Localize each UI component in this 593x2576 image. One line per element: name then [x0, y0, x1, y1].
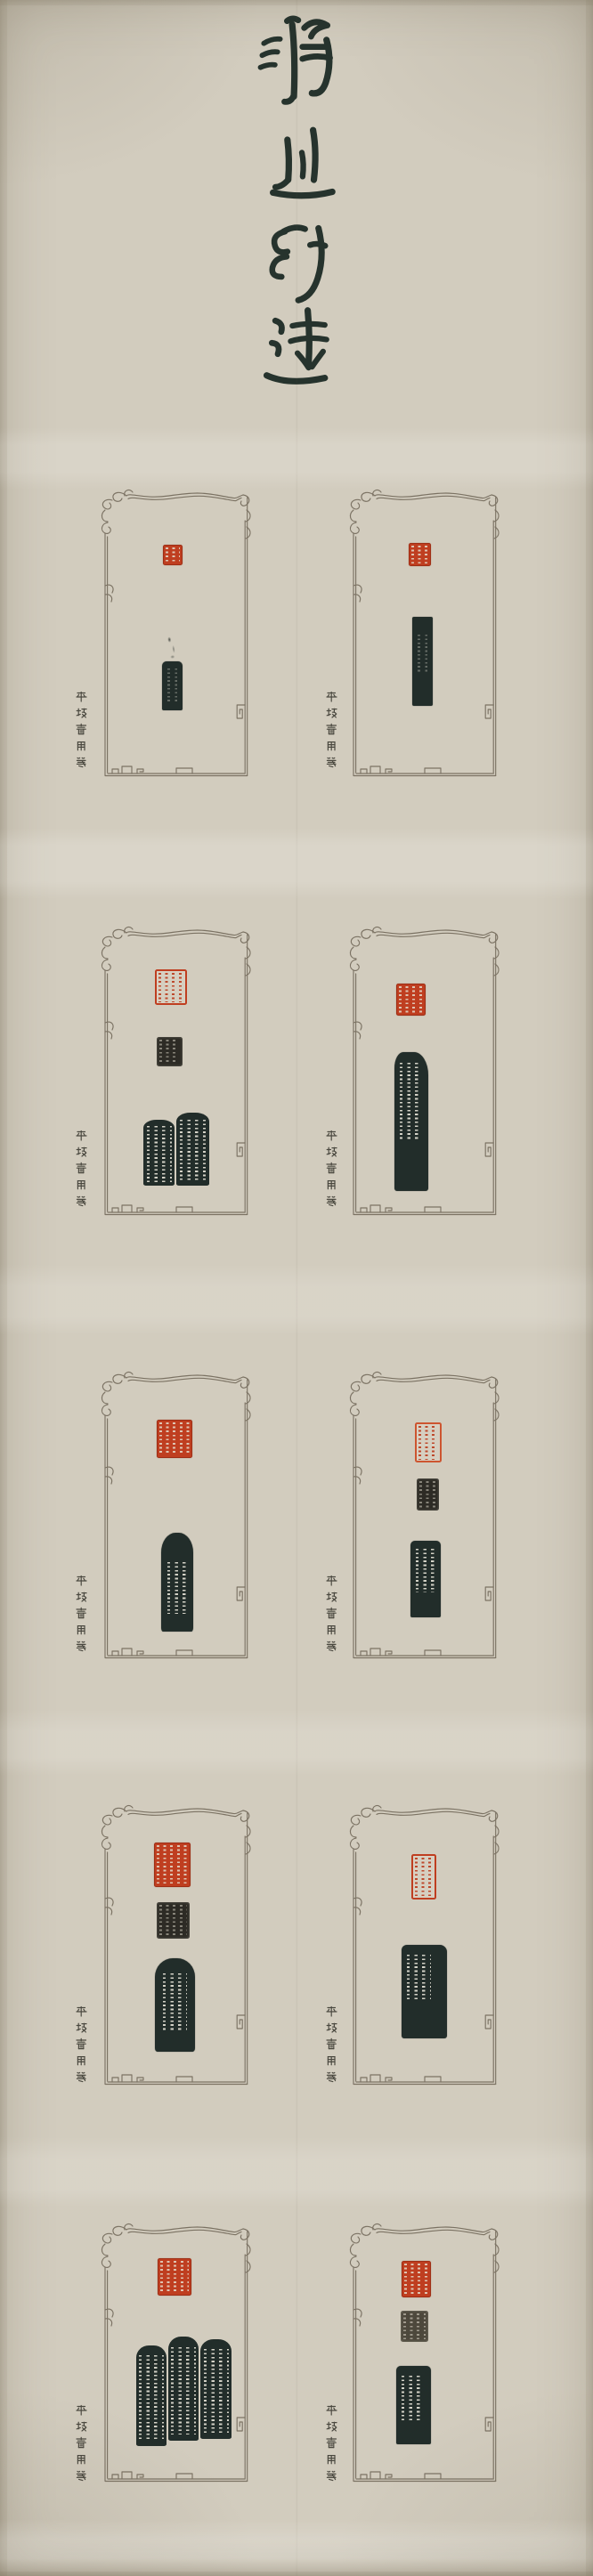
- label-char-2-glyph: [75, 2420, 87, 2433]
- title-calligraphy: 淨 止 印 迹: [0, 0, 593, 418]
- inscription-text: [171, 2347, 195, 2434]
- inscription-text: [402, 2376, 424, 2423]
- label-char-5-glyph: [325, 1640, 337, 1652]
- red-seal-impression: [158, 2258, 191, 2296]
- label-char-2-glyph: [325, 1146, 337, 1158]
- rubbing-column: [176, 1113, 209, 1186]
- label-char-3-glyph: [75, 2436, 87, 2449]
- red-seal-impression: [415, 1422, 442, 1462]
- side-inscription-rubbing: [412, 617, 433, 706]
- red-seal-impression: [155, 969, 187, 1005]
- decorative-frame: [343, 1369, 505, 1667]
- title-char-4-text: 迹: [256, 393, 257, 394]
- label-char-1-glyph: [325, 2005, 337, 2017]
- label-char-1-glyph: [325, 690, 337, 702]
- inscription-text: [167, 1562, 187, 1614]
- seal-panel-9: 平坡齋用箋: [94, 2221, 256, 2491]
- label-char-3-glyph: [325, 1607, 337, 1619]
- side-inscription-rubbing: [143, 1113, 209, 1186]
- side-inscription-rubbing: [396, 2366, 431, 2444]
- rubbing-column: [168, 2337, 199, 2441]
- label-char-2-glyph: [75, 2021, 87, 2034]
- label-char-4-glyph: [75, 1179, 87, 1191]
- title-char-2-text: 止: [262, 207, 263, 207]
- seal-panel-3: 平坡齋用箋: [94, 924, 256, 1224]
- seal-panel-7: 平坡齋用箋: [94, 1802, 256, 2094]
- label-char-2-glyph: [325, 1591, 337, 1603]
- label-char-5-glyph: [75, 2469, 87, 2482]
- title-char-1: 淨: [251, 12, 340, 109]
- seal-panel-1: 平坡齋用箋: [94, 487, 256, 785]
- inscription-text: [416, 1549, 435, 1593]
- label-char-1-glyph: [75, 1574, 87, 1586]
- seal-panel-4: 平坡齋用箋: [343, 924, 505, 1224]
- stationery-mark-label: 平坡齋用箋: [75, 690, 87, 768]
- label-char-4-glyph: [325, 740, 337, 752]
- inscription-text: [139, 2355, 163, 2440]
- title-char-3-glyph: [258, 219, 342, 304]
- label-char-4-glyph: [325, 2453, 337, 2466]
- label-char-3-glyph: [75, 1607, 87, 1619]
- ink-seal-impression: [157, 1037, 183, 1066]
- label-char-4-glyph: [325, 1624, 337, 1636]
- label-char-4-glyph: [75, 1624, 87, 1636]
- stationery-mark-label: 平坡齋用箋: [325, 2403, 337, 2482]
- seal-panel-6: 平坡齋用箋: [343, 1369, 505, 1667]
- red-seal-impression: [409, 543, 431, 566]
- inscription-text: [204, 2349, 229, 2433]
- label-char-3-glyph: [75, 1162, 87, 1174]
- ink-seal-impression: [401, 2311, 428, 2342]
- label-char-5-glyph: [75, 1195, 87, 1207]
- label-char-2-glyph: [75, 1146, 87, 1158]
- seal-album-leaf: 淨 止 印 迹 平坡: [0, 0, 593, 2576]
- side-inscription-rubbing: [402, 1945, 447, 2038]
- title-char-2-glyph: [262, 121, 342, 207]
- stationery-mark-label: 平坡齋用箋: [75, 2005, 87, 2083]
- rubbing-column: [136, 2345, 167, 2446]
- title-char-4-glyph: [256, 303, 342, 393]
- title-char-1-text: 淨: [251, 109, 252, 109]
- side-inscription-rubbing: [162, 661, 183, 710]
- side-inscription-rubbing: [136, 2337, 232, 2446]
- label-char-4-glyph: [325, 2054, 337, 2067]
- ink-seal-impression: [157, 1902, 190, 1939]
- label-char-2-glyph: [75, 707, 87, 719]
- stationery-mark-label: 平坡齋用箋: [75, 1574, 87, 1652]
- red-seal-impression: [411, 1854, 436, 1900]
- red-seal-impression: [396, 984, 426, 1016]
- side-inscription-rubbing: [394, 1052, 428, 1191]
- inscription-text: [407, 1955, 431, 1999]
- title-char-4: 迹: [256, 303, 342, 393]
- seal-panel-5: 平坡齋用箋: [94, 1369, 256, 1667]
- label-char-5-glyph: [75, 756, 87, 768]
- red-seal-impression: [402, 2261, 431, 2297]
- rubbing-column: [143, 1120, 175, 1186]
- inscription-text: [163, 1973, 187, 2031]
- label-char-1-glyph: [325, 1574, 337, 1586]
- label-char-2-glyph: [75, 1591, 87, 1603]
- label-char-3-glyph: [325, 2037, 337, 2050]
- label-char-5-glyph: [325, 2070, 337, 2083]
- side-inscription-rubbing: [155, 1958, 195, 2052]
- inscription-text: [418, 635, 428, 672]
- label-char-1-glyph: [325, 1129, 337, 1141]
- title-char-1-glyph: [251, 12, 340, 109]
- stationery-mark-label: 平坡齋用箋: [325, 1129, 337, 1207]
- label-char-3-glyph: [325, 2436, 337, 2449]
- red-seal-impression: [154, 1843, 191, 1887]
- stationery-mark-label: 平坡齋用箋: [325, 2005, 337, 2083]
- title-char-3: 印: [258, 219, 342, 304]
- label-char-1-glyph: [325, 2403, 337, 2416]
- label-char-5-glyph: [325, 1195, 337, 1207]
- side-inscription-rubbing: [161, 1533, 193, 1632]
- inscription-text: [400, 1063, 421, 1139]
- stationery-mark-label: 平坡齋用箋: [75, 1129, 87, 1207]
- label-char-1-glyph: [75, 2403, 87, 2416]
- label-char-3-glyph: [325, 723, 337, 735]
- label-char-4-glyph: [75, 2453, 87, 2466]
- label-char-5-glyph: [325, 756, 337, 768]
- inscription-text: [180, 1120, 207, 1181]
- label-char-4-glyph: [75, 2054, 87, 2067]
- label-char-1-glyph: [75, 2005, 87, 2017]
- label-char-1-glyph: [75, 690, 87, 702]
- label-char-2-glyph: [325, 2021, 337, 2034]
- label-char-3-glyph: [325, 1162, 337, 1174]
- label-char-1-glyph: [75, 1129, 87, 1141]
- red-seal-impression: [163, 545, 183, 565]
- label-char-3-glyph: [75, 2037, 87, 2050]
- side-inscription-rubbing: [410, 1541, 441, 1617]
- label-char-2-glyph: [325, 707, 337, 719]
- inscription-text: [147, 1126, 172, 1181]
- ink-seal-impression: [417, 1478, 439, 1511]
- inscription-text: [167, 668, 177, 701]
- title-char-2: 止: [262, 121, 342, 207]
- seal-panel-8: 平坡齋用箋: [343, 1802, 505, 2094]
- label-char-5-glyph: [325, 2469, 337, 2482]
- stationery-mark-label: 平坡齋用箋: [325, 1574, 337, 1652]
- seal-panel-2: 平坡齋用箋: [343, 487, 505, 785]
- label-char-5-glyph: [75, 1640, 87, 1652]
- stationery-mark-label: 平坡齋用箋: [75, 2403, 87, 2482]
- label-char-5-glyph: [75, 2070, 87, 2083]
- label-char-4-glyph: [75, 740, 87, 752]
- red-seal-impression: [157, 1420, 192, 1458]
- label-char-2-glyph: [325, 2420, 337, 2433]
- label-char-3-glyph: [75, 723, 87, 735]
- seal-panel-10: 平坡齋用箋: [343, 2221, 505, 2491]
- label-char-4-glyph: [325, 1179, 337, 1191]
- stationery-mark-label: 平坡齋用箋: [325, 690, 337, 768]
- rubbing-column: [200, 2339, 232, 2439]
